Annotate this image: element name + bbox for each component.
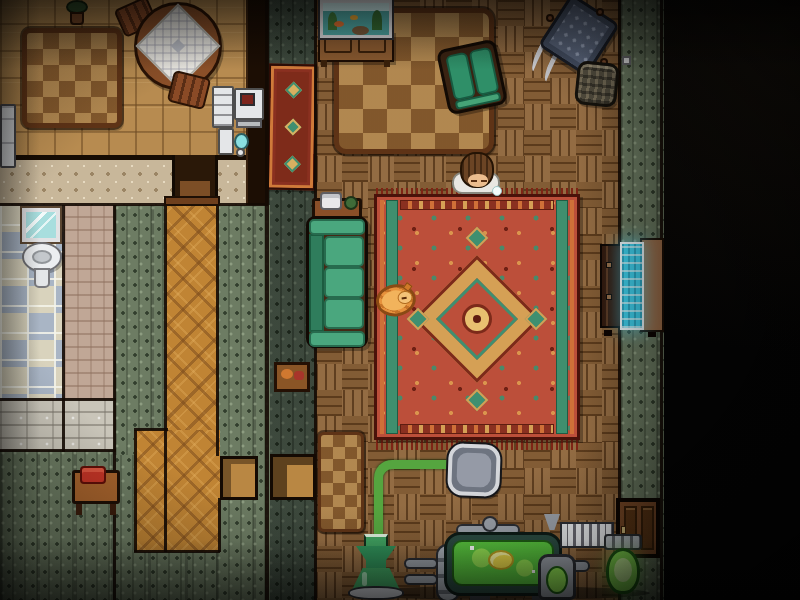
pipe <box>404 574 438 585</box>
bathroom-mirror[interactable] <box>22 208 60 242</box>
wall-edge <box>0 449 116 452</box>
crate-contents <box>294 371 304 380</box>
plant-pot <box>70 12 84 25</box>
machine[interactable] <box>348 514 660 600</box>
aquarium-fish <box>334 21 344 27</box>
couch-armrest <box>309 219 365 235</box>
couch-armrest <box>309 331 365 347</box>
water-cooler[interactable] <box>218 126 252 158</box>
wall-edge <box>134 430 137 552</box>
refrigerator[interactable] <box>0 104 16 168</box>
cooler-cup <box>236 148 245 157</box>
couch-cushion <box>324 267 364 298</box>
sink-pedestal <box>34 268 50 288</box>
couch[interactable] <box>306 214 372 352</box>
runner-motif <box>284 156 301 173</box>
hallway-corridor-floor <box>166 200 218 450</box>
condenser-window <box>546 566 568 594</box>
cabinet-drawer <box>324 38 352 53</box>
cooler-body <box>218 128 234 155</box>
passage-east[interactable] <box>270 454 316 500</box>
tank-foot <box>470 596 490 600</box>
wall-edge <box>164 200 167 552</box>
tv-cabinet <box>600 244 622 328</box>
rocker-knob <box>546 14 554 22</box>
rocker-knob <box>596 8 604 16</box>
rug-border-band <box>400 200 554 210</box>
hallway-lower-floor <box>134 430 220 552</box>
aquarium-fish <box>350 15 358 20</box>
rug-medallion-dot <box>473 315 481 323</box>
tv-knob[interactable] <box>606 294 612 300</box>
runner-motif <box>285 119 302 136</box>
monitor-screen <box>240 93 255 106</box>
rug-border-band <box>400 424 554 434</box>
wall-edge <box>134 428 168 431</box>
outside-darkness <box>660 0 800 600</box>
wall-edge <box>218 498 221 552</box>
cabinet-shelf <box>212 86 234 128</box>
tank-yellow-blob <box>488 550 514 570</box>
game-viewport <box>0 0 800 600</box>
couch-back <box>309 234 324 332</box>
aquarium-plant <box>372 10 382 30</box>
runner-rug <box>267 64 317 191</box>
dining-rug <box>22 28 122 128</box>
wooden-crate[interactable] <box>274 362 310 392</box>
table-plant <box>344 196 358 210</box>
crate-contents <box>281 369 293 379</box>
floor-pad[interactable] <box>447 443 501 497</box>
drool-bubble <box>492 186 502 196</box>
wall-edge <box>216 200 219 456</box>
child-eye <box>471 180 477 182</box>
corridor-lintel <box>164 196 220 206</box>
hall-east-wall <box>216 205 270 600</box>
tv-knob[interactable] <box>606 262 612 268</box>
telephone[interactable] <box>320 192 342 210</box>
bathroom-south-wall <box>0 400 116 452</box>
flask-base <box>348 586 404 600</box>
wall-edge <box>0 398 116 401</box>
child-eye <box>481 180 487 182</box>
cabinet-leg <box>384 60 390 67</box>
child-character[interactable] <box>452 152 504 200</box>
rug-stripe <box>570 200 574 434</box>
cat-character[interactable] <box>374 279 423 323</box>
television[interactable] <box>598 236 666 336</box>
wall-edge <box>113 205 116 600</box>
table-leg <box>110 504 116 515</box>
tank-sparkle <box>532 570 535 573</box>
funnel <box>544 514 560 530</box>
yarn-basket[interactable] <box>574 60 620 108</box>
hall-mid-wall <box>114 205 168 455</box>
bathroom-sink[interactable] <box>20 240 64 292</box>
wall-edge <box>0 203 268 206</box>
aquarium-group[interactable] <box>318 0 398 68</box>
table-leg <box>76 504 82 515</box>
pad-inner <box>456 452 491 487</box>
sink-bowl <box>32 250 52 264</box>
flask-neck <box>364 534 388 548</box>
tv-screen <box>620 242 644 330</box>
wall-edge <box>134 550 220 553</box>
rug-stripe <box>556 200 568 434</box>
runner-motif <box>285 82 302 99</box>
tank-sparkle <box>470 546 474 550</box>
flask-shine <box>362 572 367 586</box>
passage-west[interactable] <box>220 456 258 500</box>
couch-cushion <box>324 236 364 267</box>
red-telephone[interactable] <box>80 466 106 484</box>
tv-leg <box>604 330 612 336</box>
cabinet-leg <box>321 60 327 67</box>
cabinet-drawer <box>358 38 386 53</box>
tv-leg <box>648 332 656 337</box>
couch-cushion <box>324 298 364 329</box>
aquarium-rock <box>352 26 369 35</box>
wall-socket <box>622 56 631 65</box>
potted-plant <box>66 0 90 28</box>
pipe <box>404 558 438 569</box>
tank-valve <box>482 516 498 532</box>
phone-table[interactable] <box>72 466 122 516</box>
bulb-core <box>614 558 632 582</box>
